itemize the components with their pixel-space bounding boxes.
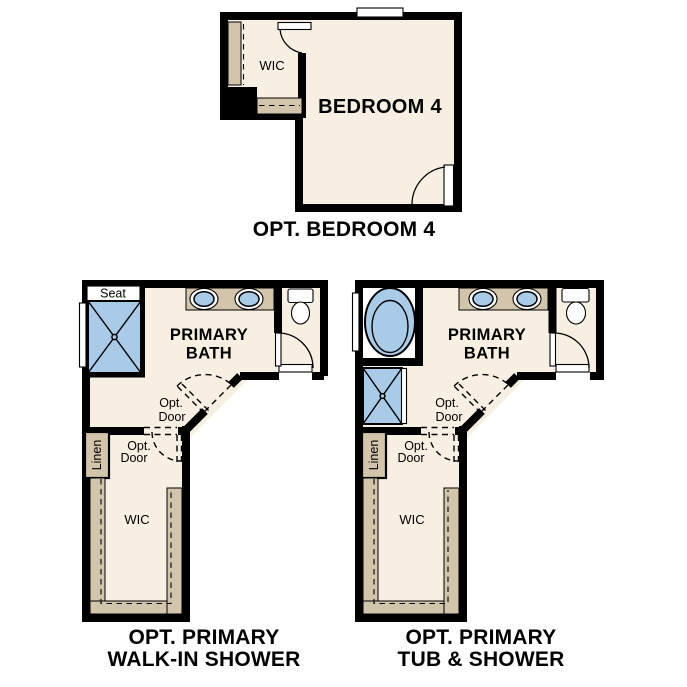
wic-label: WIC: [124, 512, 149, 527]
room-label-line2: BATH: [186, 345, 232, 363]
opt-door-label: Door: [435, 410, 462, 424]
wall-column: [220, 87, 257, 120]
plan-caption-line1: OPT. PRIMARY: [406, 626, 557, 649]
opt-door-label: Door: [397, 451, 424, 465]
plan-caption-line2: WALK-IN SHOWER: [108, 648, 301, 671]
closet-shelf: [167, 488, 182, 614]
door-opening: [556, 372, 589, 381]
floor-plan-canvas: WIC BEDROOM 4 OPT. BEDROOM 4: [0, 0, 687, 687]
shower-glass: [402, 369, 407, 424]
sink-basin: [194, 292, 214, 306]
toilet-bowl: [292, 302, 310, 324]
toilet-tank: [562, 289, 589, 303]
toilet-tank: [288, 289, 313, 303]
opt-door-label: Door: [120, 451, 147, 465]
plan-opt-primary-tub-shower: PRIMARY BATH Opt. Door Opt. Door Linen W…: [353, 280, 605, 671]
closet-shelf: [444, 488, 459, 614]
toilet-bowl: [567, 302, 586, 324]
door-leaf: [276, 333, 282, 366]
closet-shelf: [90, 478, 105, 614]
door-leaf: [556, 365, 589, 373]
opt-door-label: Opt.: [159, 396, 183, 410]
window: [357, 8, 403, 17]
window: [353, 293, 360, 351]
sink-basin: [473, 292, 493, 306]
wic-label: WIC: [399, 512, 424, 527]
seat-label: Seat: [100, 287, 126, 301]
door-leaf: [444, 165, 454, 206]
door-leaf: [550, 333, 556, 366]
sink-basin: [239, 292, 259, 306]
room-label-line1: PRIMARY: [170, 326, 248, 344]
closet-shelf: [363, 478, 378, 614]
linen-label: Linen: [90, 440, 104, 471]
closet-shelf: [228, 22, 241, 85]
opt-door-label: Door: [158, 410, 185, 424]
plan-caption: OPT. BEDROOM 4: [253, 218, 436, 241]
shower-drain: [112, 334, 117, 339]
plan-caption-line2: TUB & SHOWER: [398, 648, 565, 671]
door-opening: [279, 372, 312, 381]
opt-door-label: Opt.: [435, 396, 459, 410]
door-leaf: [278, 23, 311, 30]
room-label-line1: PRIMARY: [448, 326, 526, 344]
plan-opt-bedroom4: WIC BEDROOM 4 OPT. BEDROOM 4: [220, 8, 462, 241]
room-label-line2: BATH: [464, 345, 510, 363]
room-label: BEDROOM 4: [318, 96, 442, 118]
wic-label: WIC: [259, 58, 284, 73]
linen-label: Linen: [367, 440, 381, 471]
door-leaf: [279, 365, 312, 373]
plan-caption-line1: OPT. PRIMARY: [129, 626, 280, 649]
plan-opt-primary-walkin-shower: Seat PRIMARY BATH Opt. Door Opt. Door Li…: [80, 280, 329, 671]
sink-basin: [517, 292, 537, 306]
window: [80, 303, 87, 367]
shower-drain: [380, 394, 385, 399]
floor-plan-sheet: WIC BEDROOM 4 OPT. BEDROOM 4: [0, 0, 687, 687]
